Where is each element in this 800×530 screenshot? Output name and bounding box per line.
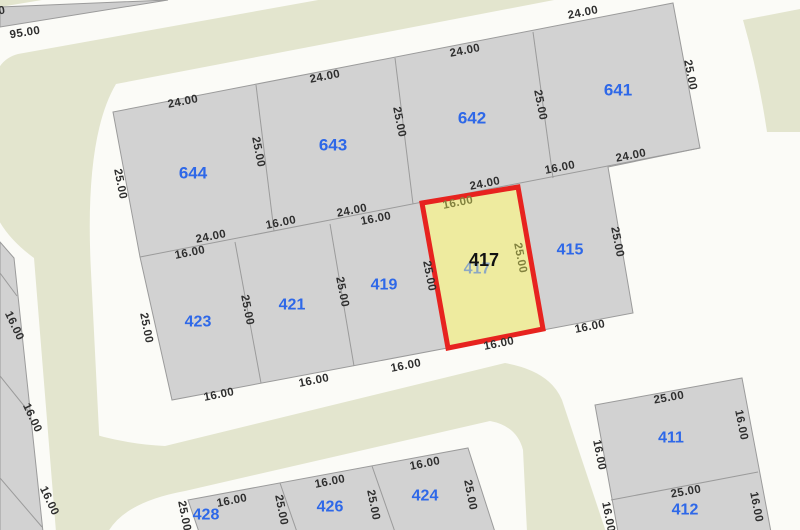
parcel-label-642[interactable]: 642	[458, 109, 486, 128]
parcel-label-412[interactable]: 412	[672, 502, 699, 519]
parcel-label-426[interactable]: 426	[317, 499, 344, 516]
parcel-label-424[interactable]: 424	[412, 488, 439, 505]
map-canvas: 24.0024.0024.0024.0025.0025.0025.0025.00…	[0, 0, 800, 530]
parcel-label-411[interactable]: 411	[658, 430, 684, 447]
parcel-label-419[interactable]: 419	[371, 277, 398, 294]
cadastral-map: 24.0024.0024.0024.0025.0025.0025.0025.00…	[0, 0, 800, 530]
parcel-label-428[interactable]: 428	[193, 507, 220, 524]
parcel-label-643[interactable]: 643	[319, 136, 347, 155]
parcel-label-644[interactable]: 644	[179, 164, 208, 183]
parcel-label-421[interactable]: 421	[279, 297, 306, 314]
selected-parcel-label: 417	[469, 250, 499, 270]
parcel-label-641[interactable]: 641	[604, 81, 632, 100]
parcel-label-415[interactable]: 415	[557, 242, 584, 259]
parcel-label-423[interactable]: 423	[185, 314, 212, 331]
